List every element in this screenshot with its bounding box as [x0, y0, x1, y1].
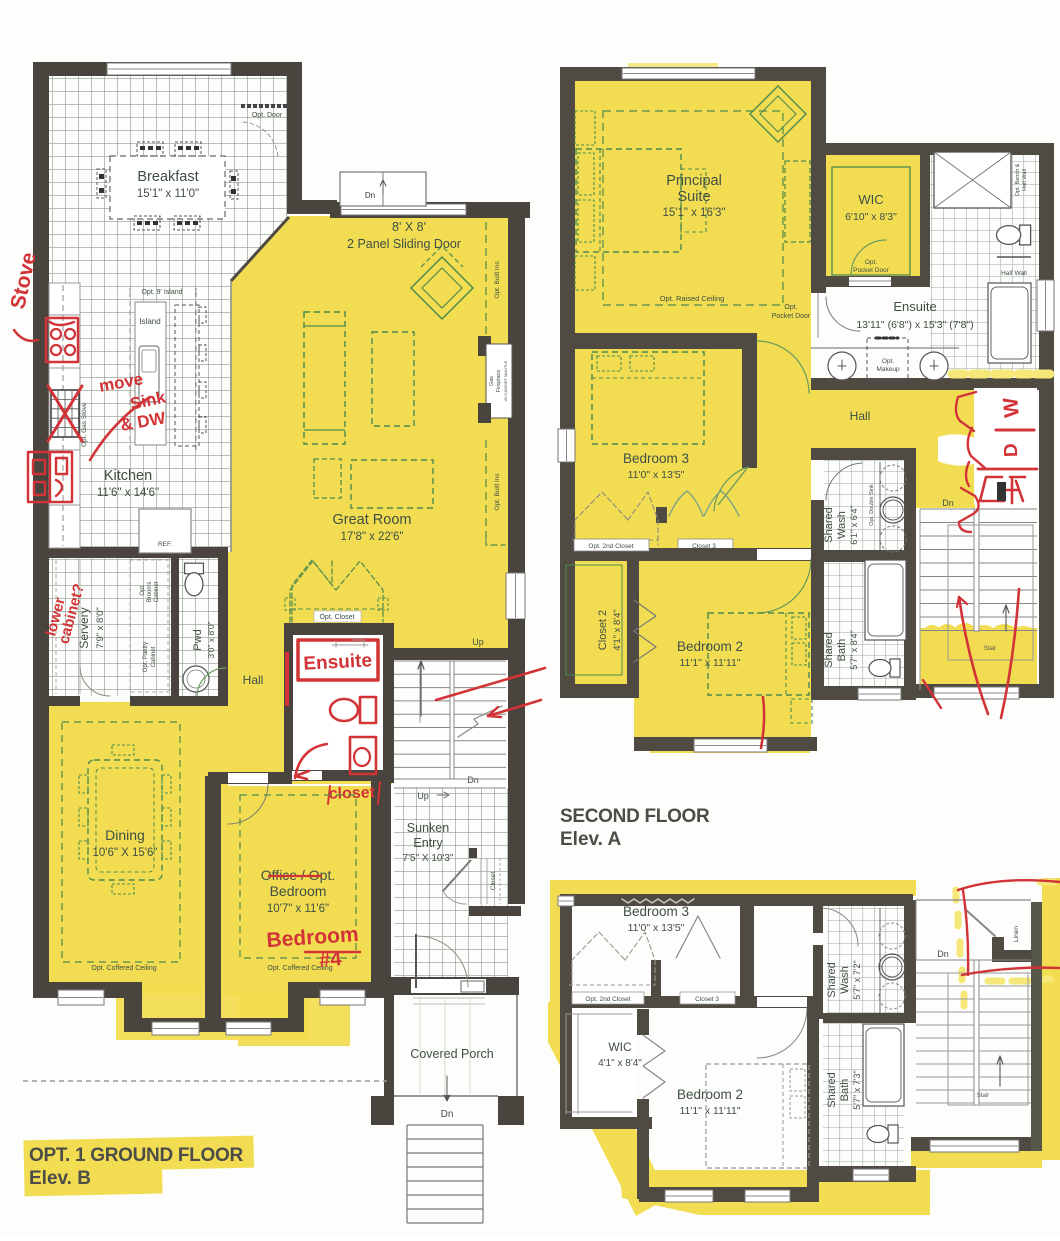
svg-text:D: D: [1001, 443, 1022, 457]
svg-text:WIC: WIC: [858, 192, 883, 207]
svg-text:5'7" x 7'3": 5'7" x 7'3": [852, 1070, 862, 1109]
svg-text:Kitchen: Kitchen: [104, 468, 152, 484]
svg-text:Hall: Hall: [243, 673, 264, 687]
svg-text:Dn: Dn: [467, 775, 479, 785]
svg-text:Half Wall: Half Wall: [1022, 169, 1028, 191]
svg-text:Half Wall: Half Wall: [1001, 270, 1027, 277]
svg-text:7'5" X 10'3": 7'5" X 10'3": [403, 853, 454, 864]
svg-text:11'1" x 11'11": 11'1" x 11'11": [679, 1105, 740, 1117]
svg-text:SECOND FLOOR: SECOND FLOOR: [560, 806, 710, 827]
svg-text:Stair: Stair: [984, 646, 996, 652]
svg-text:17'8" x 22'6": 17'8" x 22'6": [340, 531, 403, 543]
svg-text:Ensuite: Ensuite: [893, 299, 936, 314]
svg-text:Up: Up: [472, 637, 484, 647]
svg-text:Opt. Coffered Ceiling: Opt. Coffered Ceiling: [91, 965, 156, 972]
svg-text:Bedroom 2: Bedroom 2: [677, 1087, 743, 1102]
svg-text:11'1" x 11'11": 11'1" x 11'11": [679, 657, 740, 669]
svg-text:W: W: [999, 397, 1024, 419]
svg-text:Opt. 2nd Closet: Opt. 2nd Closet: [585, 996, 630, 1003]
svg-text:Opt.: Opt.: [784, 304, 797, 311]
svg-text:Wash: Wash: [836, 511, 848, 539]
svg-text:Opt.: Opt.: [865, 259, 877, 266]
svg-text:Dn: Dn: [937, 949, 949, 959]
svg-text:Fireplace: Fireplace: [496, 370, 502, 393]
svg-text:Stair: Stair: [977, 1093, 989, 1099]
svg-text:Servery: Servery: [77, 607, 91, 648]
svg-text:Opt.: Opt.: [882, 358, 894, 365]
svg-text:Cabinet: Cabinet: [154, 581, 160, 602]
svg-text:Opt. Door: Opt. Door: [252, 112, 283, 119]
svg-text:Elev. A: Elev. A: [560, 829, 622, 850]
svg-text:11'0" x 13'5": 11'0" x 13'5": [628, 469, 685, 481]
svg-text:Hall: Hall: [850, 409, 871, 423]
svg-text:4'1" x 8'4": 4'1" x 8'4": [612, 609, 623, 651]
svg-text:OPT. 1 GROUND FLOOR: OPT. 1 GROUND FLOOR: [29, 1145, 243, 1166]
svg-text:Gas: Gas: [489, 376, 495, 386]
svg-text:Entry: Entry: [413, 836, 443, 850]
svg-text:Bedroom 3: Bedroom 3: [623, 451, 689, 466]
svg-text:Opt. Closet: Opt. Closet: [319, 614, 354, 621]
svg-text:10'6" X 15'6": 10'6" X 15'6": [93, 847, 158, 859]
svg-text:Dn: Dn: [942, 498, 954, 508]
svg-text:Makeup: Makeup: [876, 366, 900, 373]
svg-text:13'11" (6'8") x 15'3" (7'8"): 13'11" (6'8") x 15'3" (7'8"): [856, 319, 973, 331]
svg-text:2 Panel Sliding Door: 2 Panel Sliding Door: [347, 237, 461, 251]
svg-text:7'9" x 8'0": 7'9" x 8'0": [95, 607, 106, 649]
svg-text:Bedroom 3: Bedroom 3: [623, 904, 689, 919]
svg-text:Principal: Principal: [666, 173, 722, 189]
svg-text:15'1" x 16'3": 15'1" x 16'3": [662, 207, 725, 219]
svg-text:Suite: Suite: [677, 189, 710, 205]
svg-text:Wash: Wash: [839, 966, 851, 994]
svg-text:Shared: Shared: [826, 1072, 838, 1107]
svg-text:Shared: Shared: [823, 632, 835, 667]
svg-text:Opt.: Opt.: [140, 584, 146, 596]
svg-text:Closet 3: Closet 3: [695, 996, 719, 1003]
svg-text:Brooms: Brooms: [147, 582, 153, 603]
svg-text:Opt. Built Ins: Opt. Built Ins: [494, 473, 501, 511]
svg-text:Opt. Bench &: Opt. Bench &: [1015, 163, 1021, 196]
svg-text:Opt. Double Sink: Opt. Double Sink: [869, 484, 875, 526]
svg-text:Bedroom 2: Bedroom 2: [677, 639, 743, 654]
svg-text:Linen: Linen: [1013, 926, 1020, 942]
svg-text:8' X 8': 8' X 8': [392, 220, 426, 234]
svg-text:Bath: Bath: [836, 639, 848, 662]
svg-text:Dining: Dining: [105, 827, 145, 843]
svg-text:Closet: Closet: [490, 872, 497, 891]
svg-text:5'7" x 8'4": 5'7" x 8'4": [849, 630, 859, 669]
svg-text:11'0" x 13'5": 11'0" x 13'5": [628, 922, 685, 934]
svg-text:Opt. 9' Island: Opt. 9' Island: [141, 289, 182, 296]
svg-text:Breakfast: Breakfast: [137, 169, 198, 185]
svg-text:6'10" x 8'3": 6'10" x 8'3": [845, 211, 897, 223]
svg-text:Island: Island: [139, 317, 160, 326]
svg-text:10'7" x 11'6": 10'7" x 11'6": [267, 903, 329, 915]
svg-text:Opt. 2nd Closet: Opt. 2nd Closet: [588, 543, 633, 550]
svg-text:5'7" x 7'2": 5'7" x 7'2": [852, 960, 862, 999]
svg-text:Opt. Pantry: Opt. Pantry: [143, 642, 149, 672]
svg-text:closet: closet: [328, 784, 375, 803]
svg-text:6'1" x 6'4": 6'1" x 6'4": [849, 505, 859, 544]
svg-text:Pwd: Pwd: [192, 629, 204, 650]
svg-text:WIC: WIC: [608, 1040, 632, 1054]
svg-text:Opt. Built Ins: Opt. Built Ins: [494, 261, 501, 299]
svg-text:Dn: Dn: [441, 1109, 454, 1120]
svg-text:W/ CABINET MANTLE: W/ CABINET MANTLE: [503, 360, 508, 401]
svg-text:15'1" x 11'0": 15'1" x 11'0": [137, 188, 199, 200]
svg-text:Elev. B: Elev. B: [29, 1168, 91, 1189]
svg-text:Up: Up: [417, 791, 429, 801]
svg-text:Cabinet: Cabinet: [151, 646, 157, 667]
svg-text:Covered Porch: Covered Porch: [410, 1047, 493, 1061]
svg-text:Bath: Bath: [839, 1079, 851, 1102]
svg-text:Bedroom: Bedroom: [270, 883, 327, 899]
svg-text:11'6" x 14'6": 11'6" x 14'6": [97, 487, 159, 499]
svg-text:Closet 2: Closet 2: [597, 610, 609, 650]
svg-text:Shared: Shared: [826, 962, 838, 997]
svg-text:Pocket Door: Pocket Door: [853, 267, 890, 274]
svg-text:Opt. Raised Ceiling: Opt. Raised Ceiling: [660, 294, 725, 303]
svg-text:Dn: Dn: [365, 191, 375, 200]
svg-text:3'0" x 8'0": 3'0" x 8'0": [206, 621, 216, 658]
svg-text:REF.: REF.: [158, 541, 172, 548]
svg-text:Ensuite: Ensuite: [303, 650, 373, 675]
svg-text:Pocket Door: Pocket Door: [772, 313, 811, 320]
svg-text:Great Room: Great Room: [333, 512, 412, 528]
svg-text:Shared: Shared: [823, 507, 835, 542]
svg-text:Sunken: Sunken: [407, 821, 449, 835]
svg-text:4'1" x 8'4": 4'1" x 8'4": [598, 1058, 642, 1069]
